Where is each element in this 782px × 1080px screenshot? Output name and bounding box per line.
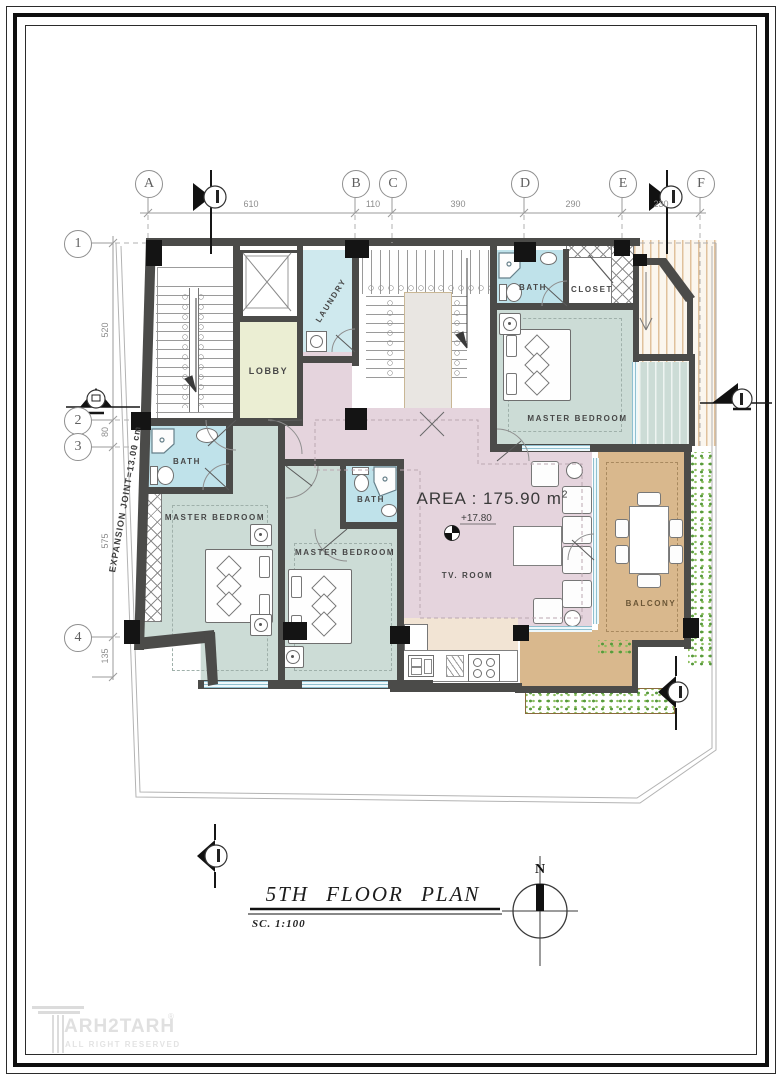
brand-tagline: ALL RIGHT RESERVED xyxy=(65,1040,181,1049)
dim-top: 230 xyxy=(641,199,681,209)
drawing-sheet: A B C D E F 1 2 3 4 610 110 390 290 230 … xyxy=(0,0,782,1080)
column xyxy=(683,618,699,638)
north-label: N xyxy=(531,862,549,878)
column xyxy=(514,242,536,262)
grid-label: F xyxy=(697,176,705,191)
column-icon xyxy=(52,1015,64,1053)
dim-left: 575 xyxy=(100,521,110,561)
area-annotation: AREA : 175.90 m2 xyxy=(405,489,580,509)
elevator-x xyxy=(243,253,291,311)
grid-lines xyxy=(88,215,716,637)
dim-top: 390 xyxy=(438,199,478,209)
grid-label: 3 xyxy=(75,439,82,454)
room-label-master-s: MASTER BEDROOM xyxy=(295,548,395,557)
grid-row-4: 4 xyxy=(64,624,92,652)
dim-top: 610 xyxy=(231,199,271,209)
grid-label: 1 xyxy=(75,236,82,251)
column xyxy=(614,240,630,256)
room-label-bath-north: BATH xyxy=(508,283,558,292)
room-label-bath-mid: BATH xyxy=(346,495,396,504)
level-marker xyxy=(445,524,497,541)
level-annotation: +17.80 xyxy=(461,513,511,524)
area-sup: 2 xyxy=(562,489,569,500)
dimension-lines xyxy=(92,198,706,681)
grid-label: E xyxy=(619,176,628,191)
room-label-balcony: BALCONY xyxy=(612,599,690,608)
grid-col-B: B xyxy=(342,170,370,198)
grid-label: C xyxy=(388,176,397,191)
site-boundary xyxy=(116,243,716,803)
grid-label: A xyxy=(144,176,154,191)
title-underline xyxy=(248,909,502,914)
dim-left: 135 xyxy=(100,636,110,676)
grid-col-A: A xyxy=(135,170,163,198)
brand-name: ARH2TARH xyxy=(64,1016,209,1038)
room-label-lobby: LOBBY xyxy=(240,366,297,376)
drawing-scale: SC. 1:100 xyxy=(252,918,352,930)
grid-row-1: 1 xyxy=(64,230,92,258)
section-markers xyxy=(66,170,772,888)
dim-top: 290 xyxy=(553,199,593,209)
column xyxy=(390,626,410,644)
dim-left: 520 xyxy=(100,310,110,350)
grid-label: B xyxy=(351,176,360,191)
hall-dashed-outline xyxy=(315,420,582,618)
column xyxy=(283,622,307,640)
dim-top: 110 xyxy=(353,199,393,209)
registered-mark: ® xyxy=(168,1012,174,1021)
column xyxy=(124,620,140,644)
area-text: AREA : 175.90 m xyxy=(417,489,562,508)
column-icon xyxy=(32,1006,84,1009)
grid-col-E: E xyxy=(609,170,637,198)
column-icon xyxy=(38,1011,80,1014)
grid-col-D: D xyxy=(511,170,539,198)
grid-row-2: 2 xyxy=(64,407,92,435)
grid-label: D xyxy=(520,176,530,191)
column xyxy=(513,625,529,641)
room-label-tv: TV. ROOM xyxy=(420,571,515,580)
column xyxy=(146,240,162,266)
grid-row-3: 3 xyxy=(64,433,92,461)
brand-logo: ARH2TARH ® ALL RIGHT RESERVED xyxy=(30,1002,250,1054)
column xyxy=(345,408,367,430)
room-label-bath-west: BATH xyxy=(162,457,212,466)
dim-left: 80 xyxy=(100,412,110,452)
grid-col-C: C xyxy=(379,170,407,198)
column xyxy=(633,254,647,266)
angled-walls xyxy=(134,238,695,686)
grid-label: 4 xyxy=(75,630,82,645)
drawing-title: 5TH FLOOR PLAN xyxy=(246,882,500,907)
grid-col-F: F xyxy=(687,170,715,198)
room-label-closet: CLOSET xyxy=(562,285,622,294)
room-label-master-ne: MASTER BEDROOM xyxy=(525,414,630,423)
column xyxy=(345,240,369,258)
grid-label: 2 xyxy=(75,413,82,428)
room-label-master-sw: MASTER BEDROOM xyxy=(160,513,270,522)
